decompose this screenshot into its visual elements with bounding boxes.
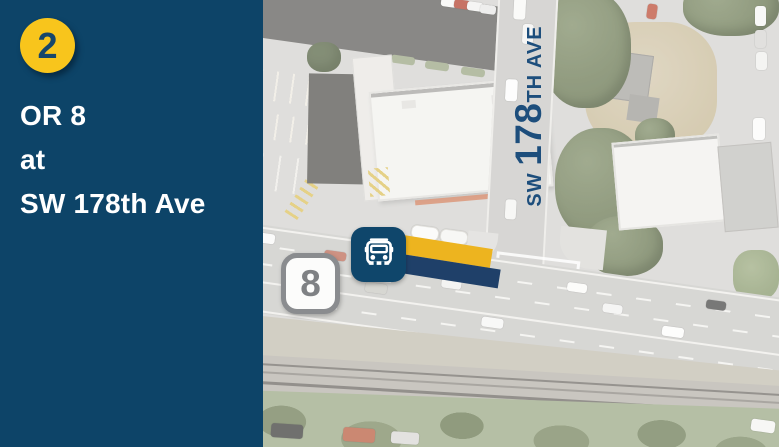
aerial-map: SW 178TH AVE xyxy=(263,0,779,447)
bus-front-icon xyxy=(360,233,398,276)
location-line-at: at xyxy=(20,138,206,182)
route-shield-number: 8 xyxy=(300,263,321,305)
sidebar: 2 OR 8 at SW 178th Ave xyxy=(0,0,263,447)
stop-number: 2 xyxy=(37,25,57,67)
stop-location-title: OR 8 at SW 178th Ave xyxy=(20,94,206,226)
stop-map-card: 2 OR 8 at SW 178th Ave xyxy=(0,0,779,447)
route-8-shield: 8 xyxy=(281,253,340,314)
street-label-sw-178th-ave: SW 178TH AVE xyxy=(508,25,550,206)
street-label-suffix: TH AVE xyxy=(524,25,546,102)
street-label-number: 178 xyxy=(508,103,549,166)
numbered-circle-badge: 2 xyxy=(20,18,75,73)
location-line-cross-street: SW 178th Ave xyxy=(20,182,206,226)
bus-stop-marker xyxy=(351,227,406,282)
street-label-prefix: SW xyxy=(524,172,546,206)
location-line-route: OR 8 xyxy=(20,94,206,138)
